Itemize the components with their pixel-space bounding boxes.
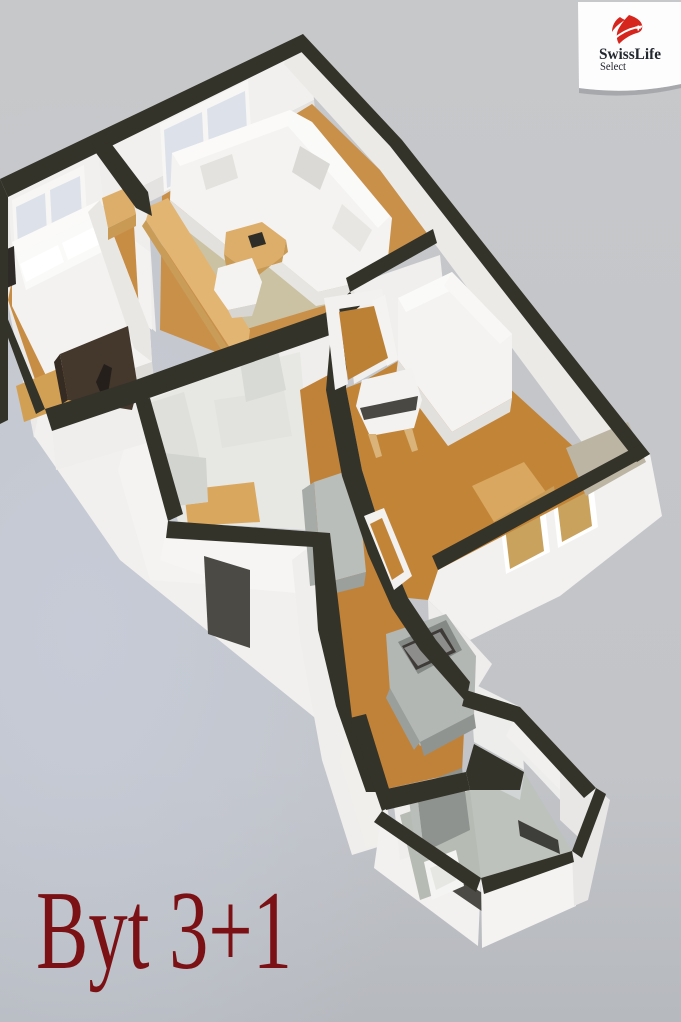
svg-text:Select: Select bbox=[600, 59, 627, 73]
svg-text:Byt 3+1: Byt 3+1 bbox=[36, 869, 292, 993]
